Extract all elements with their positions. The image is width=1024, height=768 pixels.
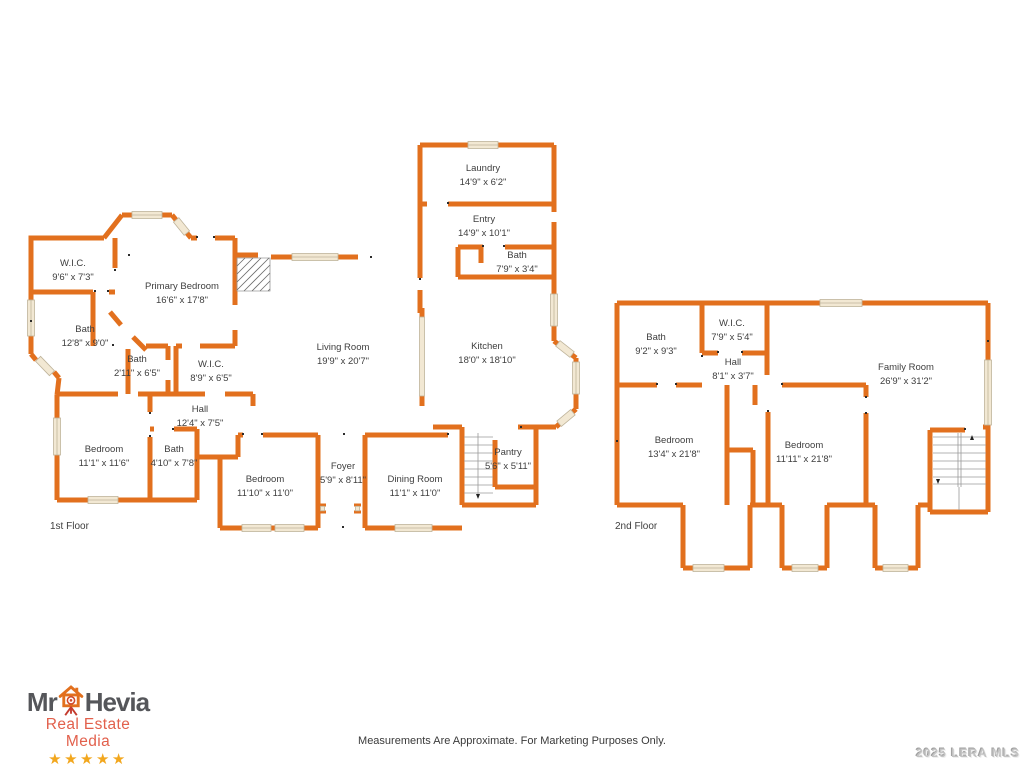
room-dims: 4'10" x 7'8"	[151, 457, 198, 471]
room-name: Bath	[496, 249, 538, 263]
room-label-bath2: Bath 2'11" x 6'5"	[114, 353, 160, 381]
room-label-dining-room: Dining Room 11'1" x 11'0"	[388, 473, 443, 501]
stairs-floor2	[933, 433, 986, 510]
house-camera-icon	[58, 684, 84, 716]
logo-word-hevia: Hevia	[85, 689, 149, 715]
room-label-bath4: Bath 7'9" x 3'4"	[496, 249, 538, 277]
room-label-kitchen: Kitchen 18'0" x 18'10"	[458, 340, 515, 368]
disclaimer-text: Measurements Are Approximate. For Market…	[0, 735, 1024, 747]
room-label-primary-bedroom: Primary Bedroom 16'6" x 17'8"	[145, 280, 219, 308]
room-name: Entry	[458, 213, 510, 227]
room-label-entry: Entry 14'9" x 10'1"	[458, 213, 510, 241]
room-dims: 8'1" x 3'7"	[712, 370, 754, 384]
room-name: Kitchen	[458, 340, 515, 354]
room-dims: 14'9" x 6'2"	[460, 176, 507, 190]
room-label-living-room: Living Room 19'9" x 20'7"	[317, 341, 370, 369]
room-dims: 14'9" x 10'1"	[458, 227, 510, 241]
room-label-f2-bedroom1: Bedroom 13'4" x 21'8"	[648, 434, 700, 462]
room-name: Primary Bedroom	[145, 280, 219, 294]
room-dims: 8'9" x 6'5"	[190, 372, 232, 386]
room-dims: 7'9" x 3'4"	[496, 263, 538, 277]
room-name: Foyer	[320, 460, 366, 474]
room-dims: 9'6" x 7'3"	[52, 271, 94, 285]
room-name: Bedroom	[237, 473, 293, 487]
room-label-hall1: Hall 12'4" x 7'5"	[177, 403, 224, 431]
room-dims: 13'4" x 21'8"	[648, 448, 700, 462]
room-dims: 12'4" x 7'5"	[177, 417, 224, 431]
room-dims: 5'9" x 8'11"	[320, 474, 366, 488]
room-dims: 11'1" x 11'6"	[79, 457, 130, 471]
room-name: Laundry	[460, 162, 507, 176]
room-name: Bedroom	[79, 443, 130, 457]
room-name: Family Room	[878, 361, 934, 375]
room-label-bedroom2: Bedroom 11'10" x 11'0"	[237, 473, 293, 501]
room-label-wic2: W.I.C. 8'9" x 6'5"	[190, 358, 232, 386]
room-name: Bath	[62, 323, 109, 337]
room-label-foyer: Foyer 5'9" x 8'11"	[320, 460, 366, 488]
floor-plan-canvas: W.I.C. 9'6" x 7'3" Primary Bedroom 16'6"…	[0, 0, 1024, 768]
room-dims: 26'9" x 31'2"	[878, 375, 934, 389]
room-label-f2-bedroom2: Bedroom 11'11" x 21'8"	[776, 439, 832, 467]
room-name: Hall	[177, 403, 224, 417]
room-label-bath1: Bath 12'8" x 9'0"	[62, 323, 109, 351]
room-dims: 19'9" x 20'7"	[317, 355, 370, 369]
room-dims: 9'2" x 9'3"	[635, 345, 677, 359]
mls-watermark: 2025 LERA MLS	[916, 746, 1020, 760]
room-label-wic1: W.I.C. 9'6" x 7'3"	[52, 257, 94, 285]
room-name: Bath	[151, 443, 198, 457]
floor-plan-drawing	[0, 0, 1024, 768]
room-dims: 11'10" x 11'0"	[237, 487, 293, 501]
floor2-tag: 2nd Floor	[615, 521, 657, 532]
room-name: Bath	[114, 353, 160, 367]
room-name: Bedroom	[648, 434, 700, 448]
room-dims: 2'11" x 6'5"	[114, 367, 160, 381]
floor1-tag: 1st Floor	[50, 521, 89, 532]
room-name: Dining Room	[388, 473, 443, 487]
logo-word-mr: Mr	[27, 689, 57, 715]
room-name: W.I.C.	[190, 358, 232, 372]
room-label-bath3: Bath 4'10" x 7'8"	[151, 443, 198, 471]
room-name: Bath	[635, 331, 677, 345]
room-label-f2-wic: W.I.C. 7'9" x 5'4"	[711, 317, 753, 345]
room-name: Bedroom	[776, 439, 832, 453]
room-name: Hall	[712, 356, 754, 370]
stairs-hatch-floor1	[237, 258, 270, 291]
room-label-laundry: Laundry 14'9" x 6'2"	[460, 162, 507, 190]
room-label-f2-bath: Bath 9'2" x 9'3"	[635, 331, 677, 359]
room-name: Living Room	[317, 341, 370, 355]
logo-star-rating: ★★★★★	[26, 752, 150, 767]
room-label-bedroom1: Bedroom 11'1" x 11'6"	[79, 443, 130, 471]
room-label-f2-hall: Hall 8'1" x 3'7"	[712, 356, 754, 384]
room-dims: 16'6" x 17'8"	[145, 294, 219, 308]
room-dims: 5'6" x 5'11"	[485, 460, 531, 474]
logo-wordmark: Mr Hevia	[26, 684, 150, 715]
room-name: W.I.C.	[52, 257, 94, 271]
company-logo: Mr Hevia Real Estate Media ★★★★★	[26, 684, 150, 767]
room-dims: 7'9" x 5'4"	[711, 331, 753, 345]
room-label-pantry: Pantry 5'6" x 5'11"	[485, 446, 531, 474]
room-label-family-room: Family Room 26'9" x 31'2"	[878, 361, 934, 389]
room-dims: 11'11" x 21'8"	[776, 453, 832, 467]
room-dims: 18'0" x 18'10"	[458, 354, 515, 368]
room-dims: 11'1" x 11'0"	[388, 487, 443, 501]
room-name: Pantry	[485, 446, 531, 460]
room-dims: 12'8" x 9'0"	[62, 337, 109, 351]
room-name: W.I.C.	[711, 317, 753, 331]
